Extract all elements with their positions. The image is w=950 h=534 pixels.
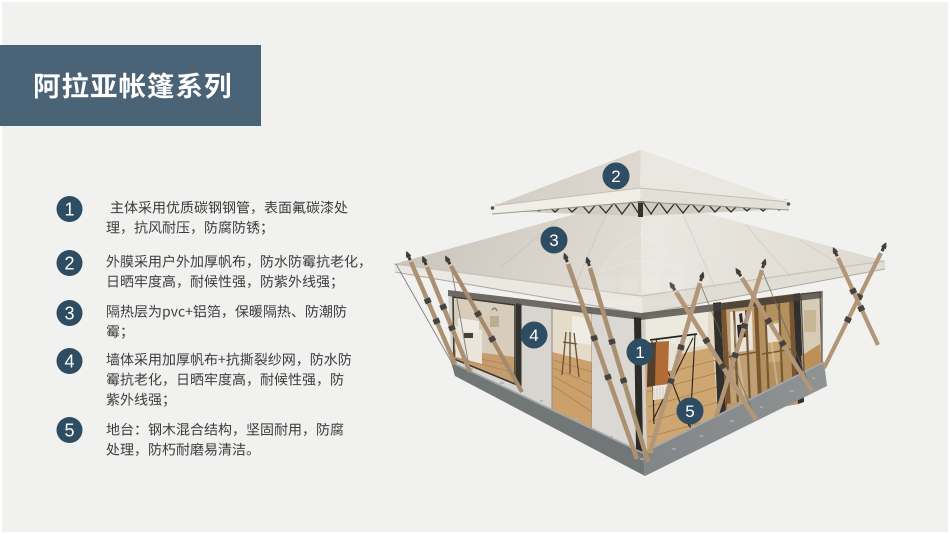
svg-text:2: 2 — [611, 167, 620, 186]
svg-text:5: 5 — [685, 402, 694, 421]
svg-text:1: 1 — [64, 200, 74, 220]
svg-text:5: 5 — [64, 421, 74, 441]
svg-text:1: 1 — [635, 343, 644, 362]
svg-text:3: 3 — [549, 231, 558, 250]
svg-text:3: 3 — [64, 304, 74, 324]
svg-text:2: 2 — [64, 254, 74, 274]
svg-text:4: 4 — [529, 326, 538, 345]
svg-text:4: 4 — [64, 352, 74, 372]
